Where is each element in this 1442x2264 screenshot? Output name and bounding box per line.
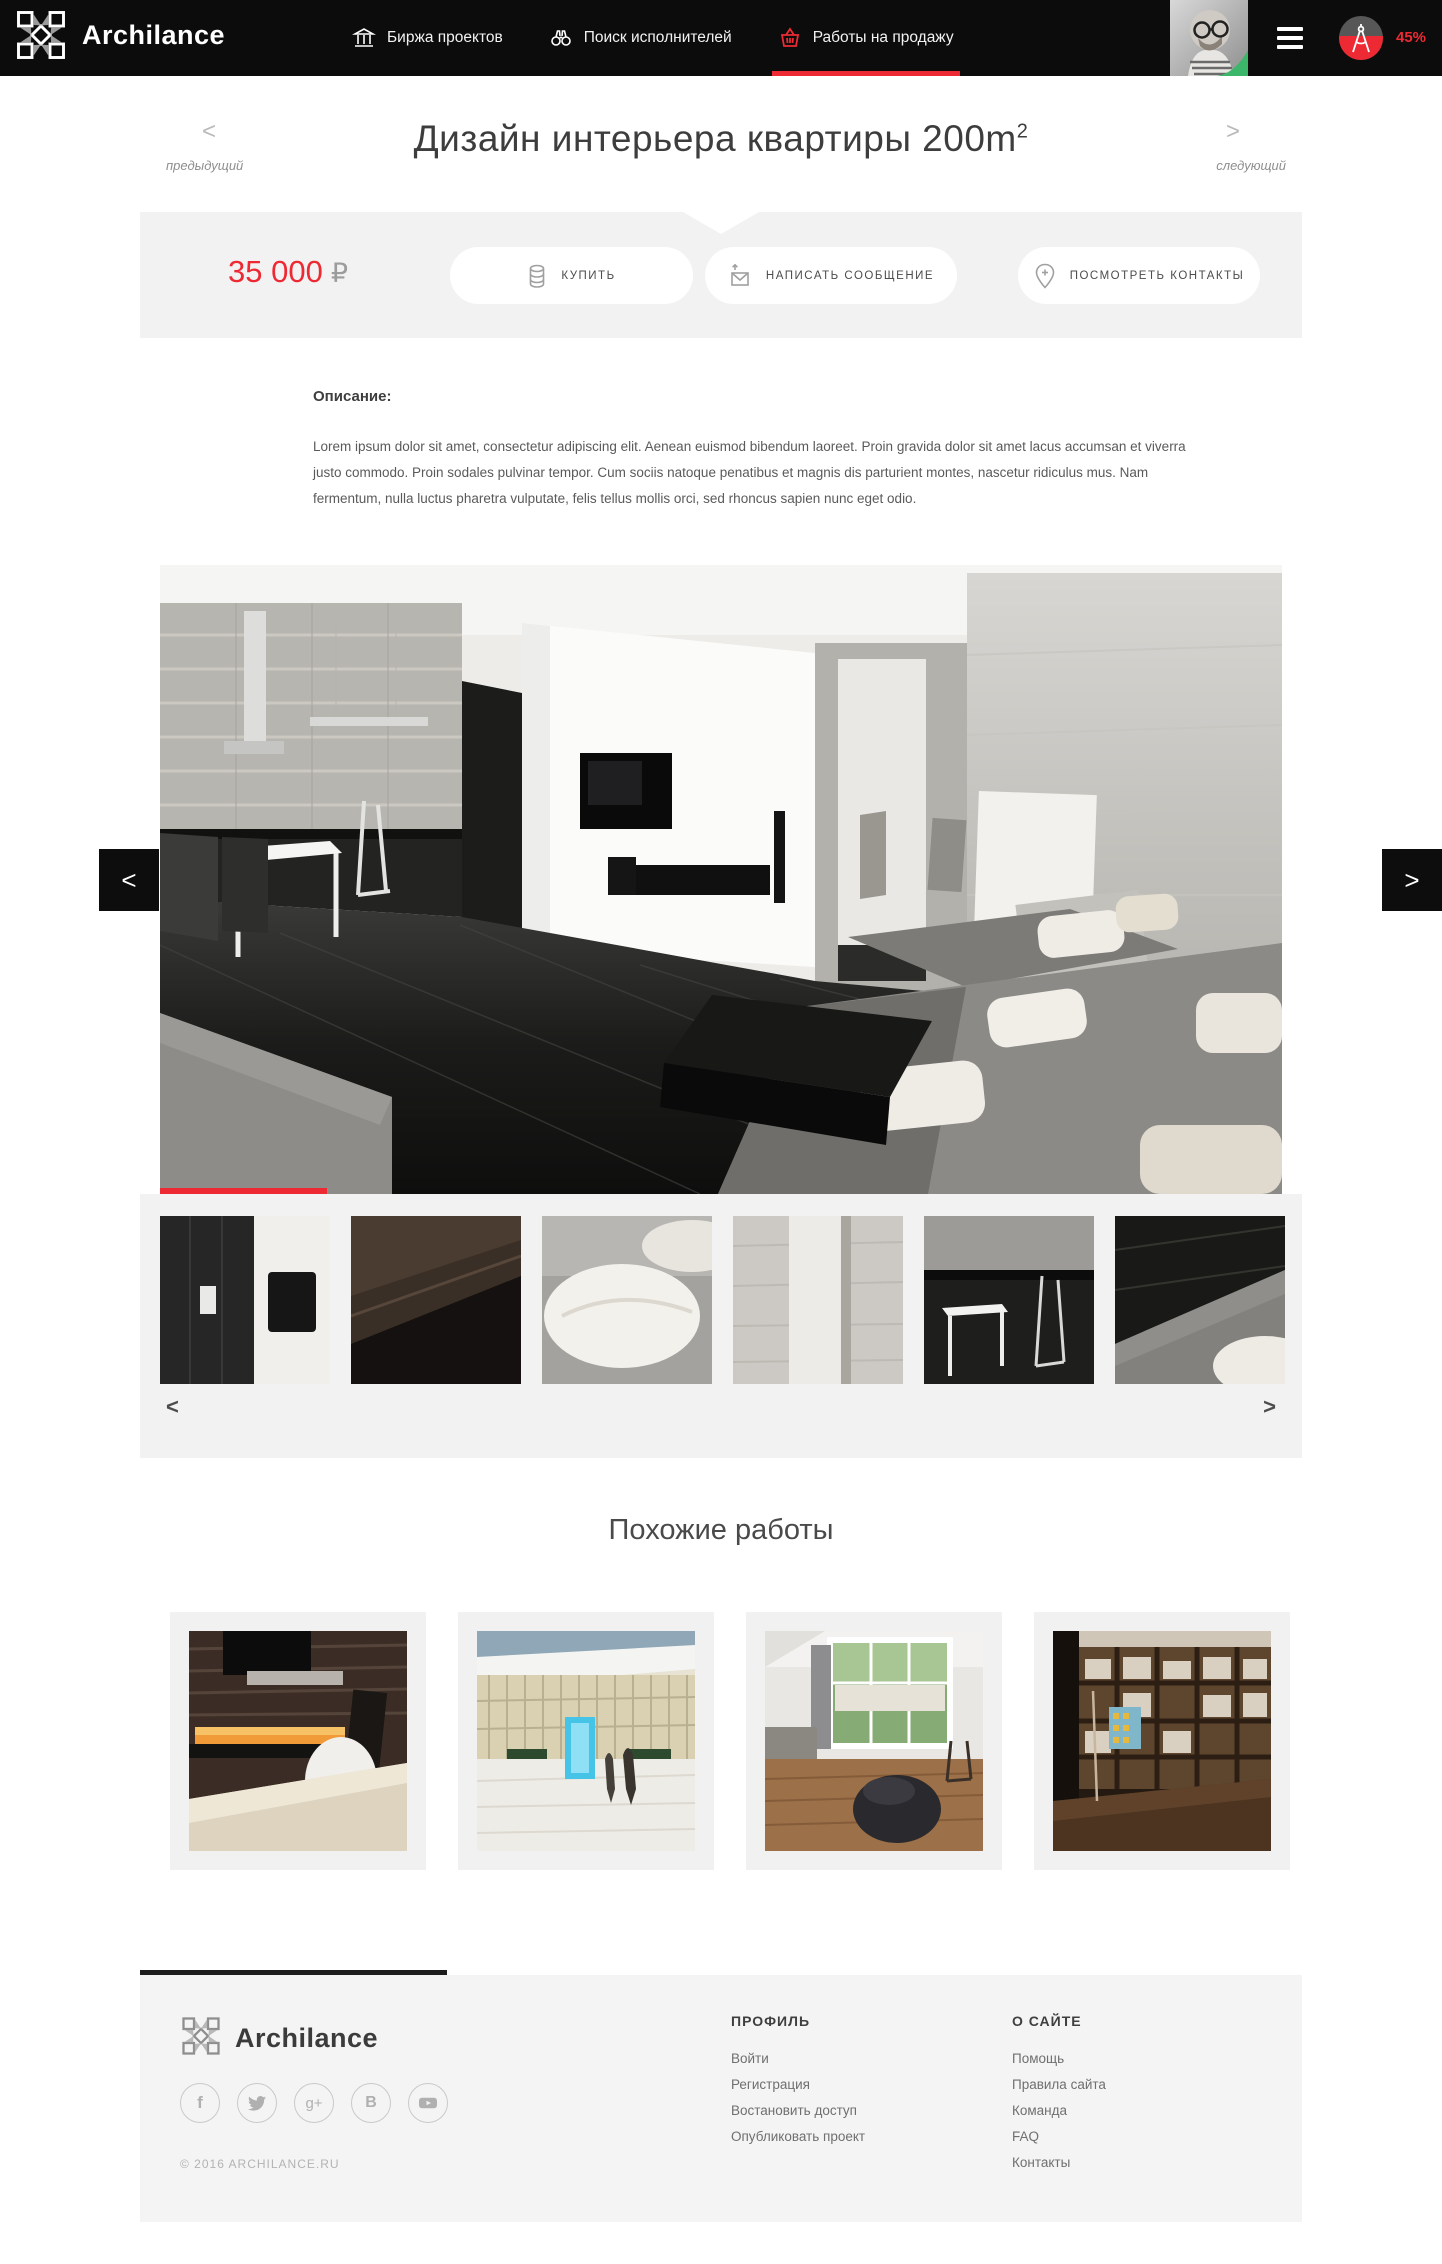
profile-progress-badge[interactable]: [1339, 16, 1383, 60]
nav-item-label: Биржа проектов: [387, 29, 503, 47]
work-title: Дизайн интерьера квартиры 200m2: [140, 118, 1302, 160]
gallery-thumbnail[interactable]: [351, 1216, 521, 1384]
navbar: Archilance Биржа проектов: [0, 0, 1442, 76]
nav-item-label: Поиск исполнителей: [584, 29, 732, 47]
thumbnails-next-button[interactable]: >: [1263, 1396, 1276, 1418]
gallery-thumbnail[interactable]: [160, 1216, 330, 1384]
view-contacts-label: ПОСМОТРЕТЬ КОНТАКТЫ: [1070, 270, 1245, 282]
similar-work-card[interactable]: [1034, 1612, 1290, 1870]
send-mail-icon: [728, 264, 752, 288]
gallery-thumbnail[interactable]: [542, 1216, 712, 1384]
purchase-bar: 35 000₽ КУПИТЬ НАПИСАТЬ СООБЩЕНИЕ: [140, 212, 1302, 338]
title-superscript: 2: [1017, 121, 1029, 143]
coins-icon: [527, 264, 547, 288]
buy-button[interactable]: КУПИТЬ: [450, 247, 693, 304]
send-message-label: НАПИСАТЬ СООБЩЕНИЕ: [766, 270, 934, 282]
notch: [683, 212, 759, 234]
footer-brand-name: Archilance: [235, 2023, 378, 2054]
similar-works-section: Похожие работы: [140, 1458, 1302, 1970]
similar-work-card[interactable]: [170, 1612, 426, 1870]
footer-link-register[interactable]: Регистрация: [731, 2077, 865, 2092]
gallery-prev-button[interactable]: <: [99, 849, 159, 911]
twitter-icon[interactable]: [237, 2083, 277, 2123]
send-message-button[interactable]: НАПИСАТЬ СООБЩЕНИЕ: [705, 247, 957, 304]
footer-link-help[interactable]: Помощь: [1012, 2051, 1106, 2066]
footer-column-profile: ПРОФИЛЬ Войти Регистрация Востановить до…: [731, 2013, 865, 2155]
buy-button-label: КУПИТЬ: [561, 270, 615, 282]
basket-icon: [778, 26, 802, 50]
location-pin-plus-icon: [1034, 263, 1056, 289]
description-heading: Описание:: [313, 388, 391, 405]
footer-link-team[interactable]: Команда: [1012, 2103, 1106, 2118]
footer-link-login[interactable]: Войти: [731, 2051, 865, 2066]
gallery-thumbnail[interactable]: [733, 1216, 903, 1384]
youtube-icon[interactable]: [408, 2083, 448, 2123]
brand-logo[interactable]: Archilance: [14, 8, 225, 62]
similar-works-heading: Похожие работы: [140, 1514, 1302, 1547]
thumbnails-prev-button[interactable]: <: [166, 1396, 179, 1418]
drafting-compass-icon: [1349, 24, 1373, 54]
nav-item-search-executors[interactable]: Поиск исполнителей: [549, 0, 732, 76]
vk-icon[interactable]: В: [351, 2083, 391, 2123]
gallery-thumbnail[interactable]: [1115, 1216, 1285, 1384]
price-amount: 35 000: [228, 254, 323, 289]
price-currency: ₽: [331, 258, 348, 288]
view-contacts-button[interactable]: ПОСМОТРЕТЬ КОНТАКТЫ: [1018, 247, 1260, 304]
next-work-label: следующий: [1216, 158, 1286, 173]
brand-name: Archilance: [82, 20, 225, 51]
footer-link-restore-access[interactable]: Востановить доступ: [731, 2103, 865, 2118]
facebook-icon[interactable]: f: [180, 2083, 220, 2123]
footer-column-heading: ПРОФИЛЬ: [731, 2013, 865, 2029]
interior-photo-illustration: [160, 565, 1282, 1194]
nav-item-projects[interactable]: Биржа проектов: [352, 0, 503, 76]
menu-icon[interactable]: [1277, 27, 1303, 49]
progress-percent: 45%: [1396, 29, 1426, 46]
binoculars-icon: [549, 26, 573, 50]
google-plus-icon[interactable]: g+: [294, 2083, 334, 2123]
social-links: f g+ В: [180, 2083, 448, 2123]
footer-link-faq[interactable]: FAQ: [1012, 2129, 1106, 2144]
nav-item-label: Работы на продажу: [813, 29, 954, 47]
gallery-thumbnail[interactable]: [924, 1216, 1094, 1384]
thumbnail-strip: < >: [140, 1194, 1302, 1458]
footer-column-about: О САЙТЕ Помощь Правила сайта Команда FAQ…: [1012, 2013, 1106, 2181]
copyright: © 2016 ARCHILANCE.RU: [180, 2157, 340, 2171]
nav-item-works-for-sale[interactable]: Работы на продажу: [778, 0, 954, 76]
footer: Archilance f g+ В © 2016 ARCHILANCE.RU П…: [140, 1975, 1302, 2222]
footer-link-rules[interactable]: Правила сайта: [1012, 2077, 1106, 2092]
nav-menu: Биржа проектов Поиск исполнителей: [352, 0, 954, 76]
gallery-next-button[interactable]: >: [1382, 849, 1442, 911]
column-icon: [352, 26, 376, 50]
user-avatar[interactable]: [1170, 0, 1248, 76]
price: 35 000₽: [228, 254, 348, 290]
page: Archilance Биржа проектов: [0, 0, 1442, 2264]
main-photo: [160, 565, 1282, 1194]
similar-work-card[interactable]: [458, 1612, 714, 1870]
description-text: Lorem ipsum dolor sit amet, consectetur …: [313, 434, 1193, 512]
footer-link-publish-project[interactable]: Опубликовать проект: [731, 2129, 865, 2144]
description-section: Описание: Lorem ipsum dolor sit amet, co…: [140, 338, 1302, 565]
brand-logo-icon: [14, 8, 68, 62]
footer-logo-icon: [180, 2015, 222, 2062]
footer-column-heading: О САЙТЕ: [1012, 2013, 1106, 2029]
footer-logo[interactable]: Archilance: [180, 2015, 378, 2062]
work-header: < предыдущий Дизайн интерьера квартиры 2…: [140, 76, 1302, 212]
footer-link-contacts[interactable]: Контакты: [1012, 2155, 1106, 2170]
next-work-arrow[interactable]: >: [1226, 120, 1240, 144]
similar-work-card[interactable]: [746, 1612, 1002, 1870]
prev-work-label: предыдущий: [166, 158, 243, 173]
